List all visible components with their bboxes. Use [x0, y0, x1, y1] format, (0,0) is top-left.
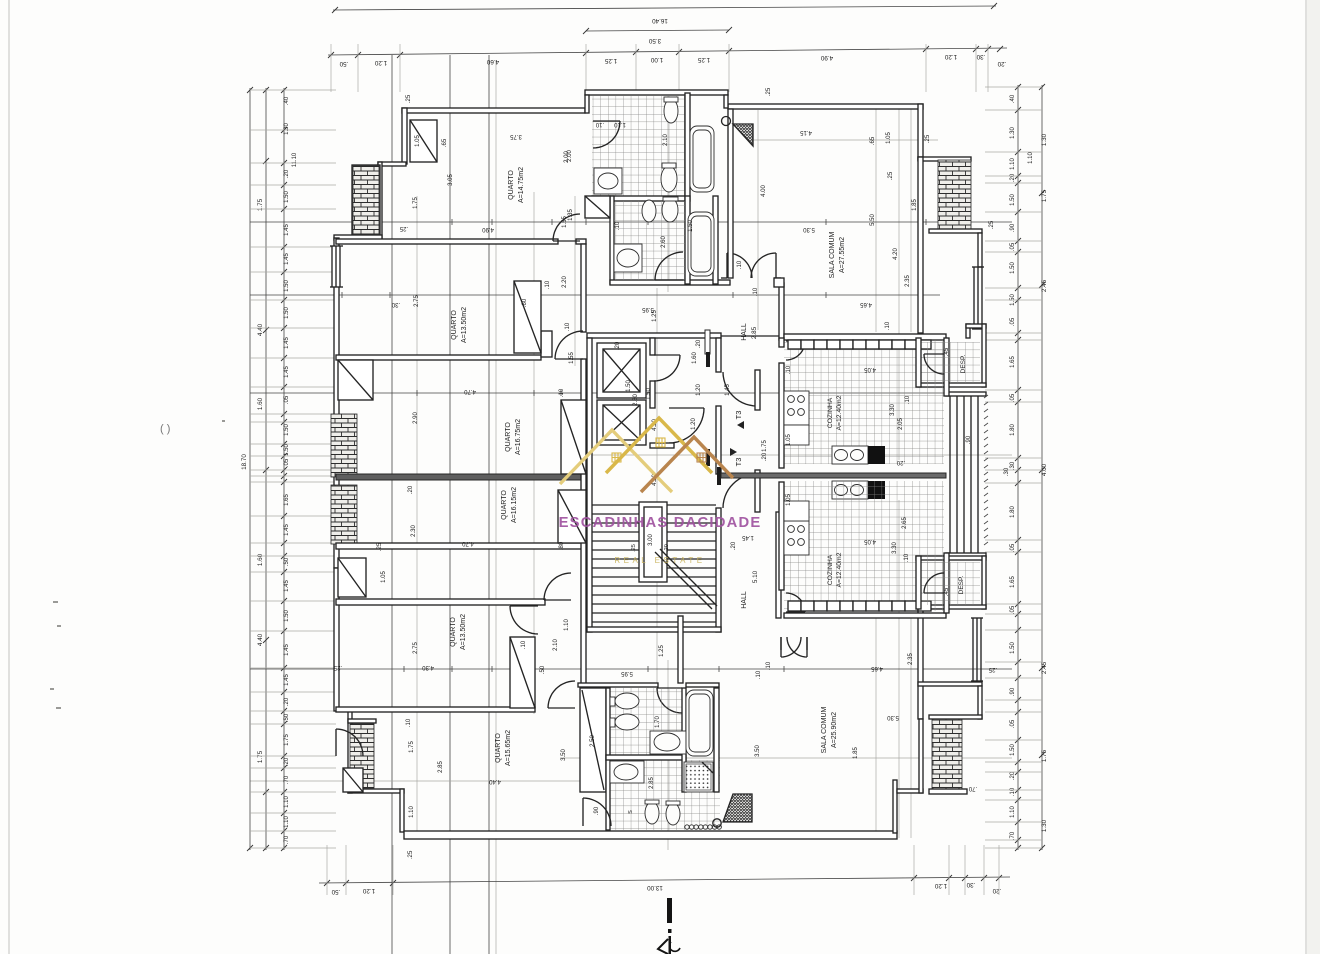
svg-text:.10: .10: [1010, 787, 1016, 796]
svg-text:.25: .25: [377, 542, 383, 551]
svg-text:.20: .20: [696, 339, 702, 348]
svg-text:2.30: 2.30: [411, 525, 417, 537]
svg-text:.20: .20: [896, 459, 905, 465]
svg-text:.05: .05: [1010, 543, 1016, 552]
svg-text:SALA COMUM: SALA COMUM: [829, 231, 836, 278]
svg-text:1.55: 1.55: [562, 216, 568, 228]
svg-text:1.05: 1.05: [786, 434, 792, 446]
svg-text:DESP.: DESP.: [958, 575, 965, 594]
svg-text:4.00: 4.00: [1041, 463, 1048, 476]
svg-text:1.50: 1.50: [284, 444, 290, 456]
svg-text:2.65: 2.65: [902, 517, 908, 529]
svg-text:.80: .80: [559, 541, 565, 550]
svg-text:.10: .10: [406, 718, 412, 727]
svg-text:.50: .50: [331, 888, 340, 895]
svg-text:2.85: 2.85: [649, 777, 655, 789]
svg-text:4.40: 4.40: [257, 633, 264, 646]
svg-text:A=16.15m2: A=16.15m2: [511, 487, 518, 523]
svg-text:2.85: 2.85: [438, 761, 444, 773]
svg-text:1.50: 1.50: [284, 424, 290, 436]
svg-text:2.50: 2.50: [590, 735, 596, 747]
svg-text:1.75: 1.75: [1041, 749, 1048, 762]
svg-text:.25: .25: [888, 171, 894, 180]
svg-text:1.20: 1.20: [934, 882, 947, 889]
svg-text:2.90: 2.90: [413, 412, 419, 424]
svg-text:.65: .65: [870, 136, 876, 145]
svg-text:.20: .20: [762, 452, 768, 461]
svg-text:.10: .10: [905, 395, 911, 404]
svg-text:.25: .25: [406, 94, 412, 103]
svg-text:QUARTO: QUARTO: [450, 617, 457, 647]
svg-text:.65: .65: [442, 138, 448, 147]
svg-text:.05: .05: [1010, 605, 1016, 614]
svg-text:1.65: 1.65: [284, 494, 290, 506]
svg-text:2.05: 2.05: [898, 418, 904, 430]
svg-text:1.25: 1.25: [604, 57, 617, 64]
svg-text:1.85: 1.85: [853, 747, 859, 759]
svg-text:.10: .10: [565, 322, 571, 331]
svg-text:5.50: 5.50: [870, 214, 876, 226]
svg-text:1.10: 1.10: [1010, 806, 1016, 818]
svg-text:.70: .70: [1010, 831, 1016, 840]
svg-text:1.65: 1.65: [1010, 576, 1016, 588]
svg-text:3.30: 3.30: [890, 404, 896, 416]
svg-text:.10: .10: [545, 280, 551, 289]
svg-text:1.75: 1.75: [284, 734, 290, 746]
svg-text:1.75: 1.75: [257, 750, 264, 763]
svg-text:.90: .90: [1010, 687, 1016, 696]
svg-text:1.45: 1.45: [725, 384, 731, 396]
svg-text:3.05: 3.05: [448, 174, 454, 186]
svg-text:.10: .10: [786, 365, 792, 374]
svg-text:.10: .10: [904, 553, 910, 562]
svg-text:3.50: 3.50: [755, 745, 761, 757]
svg-text:16.40: 16.40: [652, 17, 668, 24]
svg-text:QUARTO: QUARTO: [505, 422, 512, 452]
svg-text:DESP.: DESP.: [960, 354, 967, 373]
svg-text:.50: .50: [339, 60, 348, 67]
svg-text:.30: .30: [976, 53, 985, 60]
svg-text:11.10: 11.10: [292, 152, 298, 167]
svg-text:.05: .05: [1010, 393, 1016, 402]
svg-text:1.75: 1.75: [762, 440, 768, 452]
svg-text:.50: .50: [284, 713, 290, 722]
svg-text:5.30: 5.30: [803, 226, 815, 232]
svg-text:2.45: 2.45: [1041, 661, 1048, 674]
svg-text:QUARTO: QUARTO: [495, 733, 502, 763]
svg-text:.20: .20: [1010, 173, 1016, 182]
svg-text:.25: .25: [766, 87, 772, 96]
svg-text:3.50: 3.50: [648, 37, 661, 44]
svg-text:1.45: 1.45: [284, 524, 290, 536]
svg-text:1.75: 1.75: [409, 741, 415, 753]
svg-text:.90: .90: [594, 806, 600, 815]
svg-text:1.10: 1.10: [564, 619, 570, 631]
svg-text:1.50: 1.50: [688, 220, 694, 232]
svg-text:4.05: 4.05: [864, 366, 876, 372]
svg-text:A=15.65m2: A=15.65m2: [505, 730, 512, 766]
svg-text:1.25: 1.25: [652, 310, 658, 322]
svg-text:4.70: 4.70: [464, 388, 476, 394]
svg-text:.05: .05: [1010, 719, 1016, 728]
svg-text:1.10: 1.10: [1010, 158, 1016, 170]
svg-text:1.10: 1.10: [614, 121, 626, 127]
svg-text:ESCADINHAS DACIDADE: ESCADINHAS DACIDADE: [559, 515, 762, 531]
svg-text:.40: .40: [1010, 94, 1016, 103]
svg-text:QUARTO: QUARTO: [451, 310, 458, 340]
svg-text:1.30: 1.30: [1041, 133, 1048, 146]
svg-text:2.60: 2.60: [661, 236, 667, 248]
svg-text:4.65: 4.65: [860, 301, 872, 307]
svg-text:1.20: 1.20: [374, 59, 387, 66]
svg-text:4.30: 4.30: [422, 664, 434, 670]
svg-text:1.10: 1.10: [284, 796, 290, 808]
svg-text:REAL ESTATE: REAL ESTATE: [614, 556, 705, 565]
svg-text:1.10: 1.10: [284, 816, 290, 828]
svg-text:1.25: 1.25: [659, 645, 665, 657]
svg-text:A=27.55m2: A=27.55m2: [839, 237, 846, 273]
svg-text:.60: .60: [522, 298, 528, 307]
svg-text:1.25: 1.25: [697, 56, 710, 63]
svg-text:.10: .10: [595, 121, 604, 127]
svg-text:1.45: 1.45: [284, 224, 290, 236]
svg-text:.70: .70: [284, 775, 290, 784]
svg-text:1.05: 1.05: [381, 571, 387, 583]
svg-text:1.30: 1.30: [284, 123, 290, 135]
svg-text:.20: .20: [284, 169, 290, 178]
svg-text:.10: .10: [521, 640, 527, 649]
svg-text:.30: .30: [1004, 467, 1010, 476]
svg-text:2.20: 2.20: [562, 276, 568, 288]
svg-text:COZINHA: COZINHA: [827, 397, 834, 428]
svg-text:1.45: 1.45: [742, 534, 754, 540]
svg-text:1.50: 1.50: [1010, 744, 1016, 756]
svg-text:4.70: 4.70: [462, 540, 474, 546]
svg-text:18.70: 18.70: [241, 454, 248, 470]
svg-text:1.75: 1.75: [413, 197, 419, 209]
svg-text:A=13.50m2: A=13.50m2: [460, 614, 467, 650]
svg-text:4.60: 4.60: [486, 58, 499, 65]
svg-text:A=12.40m2: A=12.40m2: [836, 552, 843, 587]
svg-text:.20: .20: [997, 60, 1006, 67]
svg-text:1.45: 1.45: [284, 337, 290, 349]
svg-text:4.40: 4.40: [257, 323, 264, 336]
svg-text:( ): ( ): [160, 423, 170, 435]
svg-text:.25: .25: [407, 850, 414, 859]
svg-text:4.20: 4.20: [893, 248, 899, 260]
svg-text:1.50: 1.50: [1010, 262, 1016, 274]
svg-text:5.30: 5.30: [887, 714, 899, 720]
svg-text:3.00: 3.00: [648, 534, 654, 546]
svg-text:.50: .50: [540, 665, 546, 674]
svg-text:2.35: 2.35: [908, 653, 914, 665]
svg-text:4.65: 4.65: [871, 665, 883, 671]
svg-text:1.60: 1.60: [257, 397, 264, 410]
svg-text:1.50: 1.50: [626, 380, 632, 392]
svg-text:1.20: 1.20: [691, 418, 697, 430]
svg-text:.10: .10: [756, 670, 762, 679]
svg-text:1.80: 1.80: [1010, 506, 1016, 518]
svg-text:1.50: 1.50: [1010, 642, 1016, 654]
svg-text:.25: .25: [631, 544, 637, 552]
svg-text:.10: .10: [559, 388, 565, 397]
svg-text:13.00: 13.00: [647, 884, 663, 891]
svg-text:.20: .20: [731, 541, 737, 550]
svg-text:1.45: 1.45: [284, 674, 290, 686]
svg-text:1.45: 1.45: [284, 580, 290, 592]
svg-text:.05: .05: [1010, 317, 1016, 326]
svg-text:QUARTO: QUARTO: [501, 490, 508, 520]
svg-text:2.35: 2.35: [905, 275, 911, 287]
svg-text:.25: .25: [988, 666, 997, 672]
svg-text:1.05: 1.05: [886, 132, 892, 144]
svg-text:.10: .10: [885, 321, 891, 330]
svg-text:4.05: 4.05: [864, 538, 876, 544]
svg-text:1.10: 1.10: [1028, 152, 1034, 164]
svg-text:1.60: 1.60: [257, 553, 264, 566]
svg-text:.25: .25: [333, 664, 342, 670]
svg-text:1.50: 1.50: [1010, 194, 1016, 206]
svg-text:1.05: 1.05: [415, 135, 421, 147]
svg-text:3.50: 3.50: [561, 749, 567, 761]
svg-text:1.45: 1.45: [284, 366, 290, 378]
svg-text:1.30: 1.30: [1041, 819, 1048, 832]
svg-text:2.75: 2.75: [413, 642, 419, 654]
svg-text:.20: .20: [284, 697, 290, 706]
svg-text:3.75: 3.75: [510, 133, 522, 139]
svg-text:1.85: 1.85: [912, 199, 918, 211]
svg-text:5.95: 5.95: [621, 670, 633, 676]
svg-text:1.50: 1.50: [284, 280, 290, 292]
svg-text:1.50: 1.50: [284, 610, 290, 622]
svg-text:1.10: 1.10: [409, 806, 415, 818]
svg-text:.25: .25: [989, 220, 995, 229]
svg-text:1.45: 1.45: [284, 644, 290, 656]
svg-text:1.20: 1.20: [362, 887, 375, 894]
svg-text:T3: T3: [734, 458, 743, 467]
svg-text:SALA COMUM: SALA COMUM: [821, 706, 828, 753]
svg-text:2.45: 2.45: [1041, 279, 1048, 292]
svg-text:1.30: 1.30: [1010, 127, 1016, 139]
svg-text:.70: .70: [968, 785, 977, 791]
svg-text:2.10: 2.10: [553, 639, 559, 651]
svg-text:.90: .90: [966, 435, 972, 444]
svg-text:.50: .50: [284, 557, 290, 566]
svg-text:.25: .25: [399, 225, 408, 231]
svg-text:1.70: 1.70: [655, 716, 661, 728]
svg-text:2.85: 2.85: [751, 326, 758, 339]
svg-text:A=13.50m2: A=13.50m2: [461, 307, 468, 343]
svg-text:1.45: 1.45: [284, 253, 290, 265]
svg-text:.10: .10: [753, 287, 759, 296]
svg-text:1.35: 1.35: [568, 209, 574, 221]
svg-text:HALL: HALL: [741, 323, 748, 341]
svg-text:.45: .45: [944, 347, 950, 356]
svg-text:1.60: 1.60: [692, 352, 698, 364]
svg-text:5.10: 5.10: [752, 570, 759, 583]
svg-text:.70: .70: [284, 835, 290, 844]
svg-text:.05: .05: [284, 395, 290, 404]
svg-text:.20: .20: [615, 341, 621, 350]
svg-text:2.00: 2.00: [564, 151, 570, 163]
svg-text:HALL: HALL: [741, 591, 748, 609]
svg-text:A=14.75m2: A=14.75m2: [518, 167, 525, 203]
svg-text:.10: .10: [737, 260, 743, 269]
svg-text:A=16.75m2: A=16.75m2: [515, 419, 522, 455]
svg-text:.05: .05: [1010, 242, 1016, 251]
svg-text:A=12.40m2: A=12.40m2: [836, 395, 843, 430]
svg-text:COZINHA: COZINHA: [827, 554, 834, 585]
svg-text:1.05: 1.05: [786, 494, 792, 506]
svg-text:3.30: 3.30: [892, 542, 898, 554]
svg-text:1.50: 1.50: [284, 191, 290, 203]
svg-text:1.75: 1.75: [1041, 189, 1048, 202]
svg-text:.10: .10: [766, 661, 772, 670]
svg-text:1.55: 1.55: [569, 352, 575, 364]
svg-text:4.90: 4.90: [820, 54, 833, 61]
svg-text:T3: T3: [734, 411, 743, 420]
svg-text:1.20: 1.20: [944, 53, 957, 60]
svg-text:1.20: 1.20: [696, 384, 702, 396]
svg-text:.20: .20: [408, 485, 414, 494]
svg-text:.30: .30: [391, 301, 400, 307]
svg-text:.90: .90: [1010, 223, 1016, 232]
svg-text:.25: .25: [925, 134, 931, 143]
svg-text:4.15: 4.15: [800, 129, 812, 135]
svg-text:.20: .20: [1010, 771, 1016, 780]
svg-text:.30: .30: [966, 881, 975, 888]
svg-text:1.80: 1.80: [1010, 424, 1016, 436]
svg-text:1.50: 1.50: [284, 307, 290, 319]
svg-text:1.50: 1.50: [646, 388, 652, 400]
svg-text:.20: .20: [664, 544, 670, 552]
svg-text:.30: .30: [1010, 461, 1016, 470]
svg-text:4.00: 4.00: [761, 185, 767, 197]
svg-text:.20: .20: [284, 757, 290, 766]
svg-text:.45: .45: [944, 587, 950, 596]
svg-text:2.10: 2.10: [663, 134, 669, 146]
svg-text:QUARTO: QUARTO: [508, 170, 515, 200]
svg-text:4.40: 4.40: [489, 778, 501, 784]
svg-text:1.65: 1.65: [1010, 356, 1016, 368]
svg-text:.40: .40: [284, 96, 290, 105]
svg-text:S: S: [628, 810, 634, 814]
svg-text:.10: .10: [615, 221, 621, 230]
svg-text:.20: .20: [992, 887, 1001, 894]
svg-text:2.75: 2.75: [414, 295, 420, 307]
svg-text:2.80: 2.80: [633, 394, 639, 406]
svg-text:A=25.90m2: A=25.90m2: [831, 712, 838, 748]
svg-text:1.00: 1.00: [650, 56, 663, 63]
svg-text:.05: .05: [284, 458, 290, 467]
svg-text:4.90: 4.90: [482, 226, 494, 232]
